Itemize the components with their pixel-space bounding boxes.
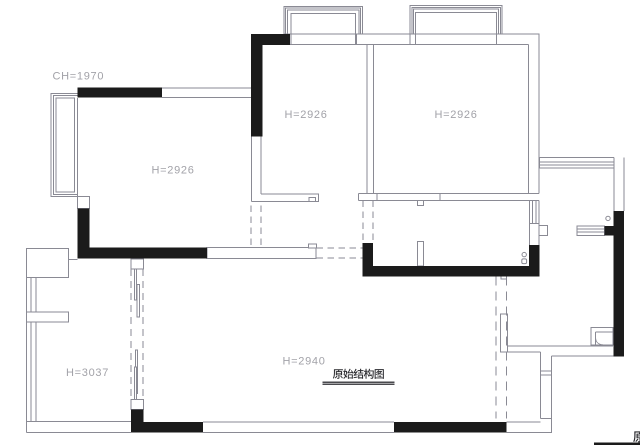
svg-text:H=2926: H=2926 xyxy=(435,109,478,121)
svg-text:H=2926: H=2926 xyxy=(152,165,195,177)
svg-text:H=3037: H=3037 xyxy=(66,367,109,379)
svg-text:H=2940: H=2940 xyxy=(283,356,326,368)
svg-text:CH=1970: CH=1970 xyxy=(53,71,105,83)
svg-text:H=2926: H=2926 xyxy=(285,109,328,121)
